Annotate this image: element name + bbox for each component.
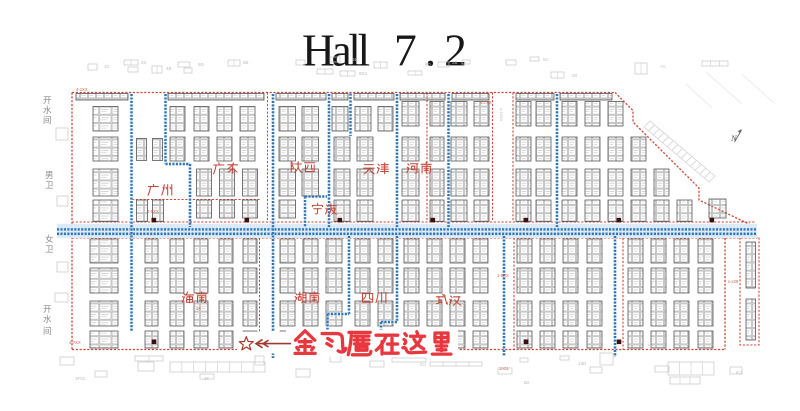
svg-text:9D: 9D [198,62,205,67]
svg-text:1F01: 1F01 [75,376,86,381]
svg-text:女: 女 [45,234,54,244]
svg-text:13D: 13D [578,361,587,366]
svg-text:间: 间 [43,326,52,336]
svg-text:2B: 2B [452,60,458,65]
svg-text:开: 开 [43,304,52,314]
svg-text:6C: 6C [543,57,550,62]
svg-text:Hall: Hall [302,25,369,76]
svg-text:4-6XX: 4-6XX [147,209,159,214]
svg-text:9D1: 9D1 [359,71,368,76]
svg-text:B2: B2 [524,380,530,385]
svg-text:卫: 卫 [45,180,54,190]
svg-text:7A: 7A [660,64,666,69]
svg-text:10: 10 [104,64,110,69]
svg-text:4-10XX: 4-10XX [499,108,504,122]
svg-text:水: 水 [43,105,52,115]
svg-text:开: 开 [43,95,52,105]
svg-text:1F: 1F [196,306,201,311]
svg-text:4-7XX: 4-7XX [69,340,81,345]
svg-text:1-8XX: 1-8XX [497,273,509,278]
svg-text:5B: 5B [243,60,249,65]
svg-text:1B: 1B [352,57,358,62]
svg-text:8D: 8D [425,62,432,67]
svg-text:30: 30 [572,73,578,78]
svg-text:4-1XX: 4-1XX [76,87,88,92]
svg-text:1F: 1F [204,376,210,381]
svg-text:卫: 卫 [45,244,54,254]
svg-text:28: 28 [141,60,147,65]
svg-text:4-7XX: 4-7XX [480,100,492,105]
svg-text:1A01: 1A01 [499,366,509,371]
svg-text:间: 间 [43,115,52,125]
svg-text:ICI: ICI [736,370,742,375]
svg-text:x-x28: x-x28 [728,279,739,284]
svg-text:水: 水 [43,314,52,324]
svg-text:男: 男 [45,170,54,180]
svg-text:x2: x2 [648,342,653,347]
svg-text:4B: 4B [166,66,172,71]
svg-text:7.2: 7.2 [394,25,475,76]
svg-text:ICI: ICI [420,362,426,367]
